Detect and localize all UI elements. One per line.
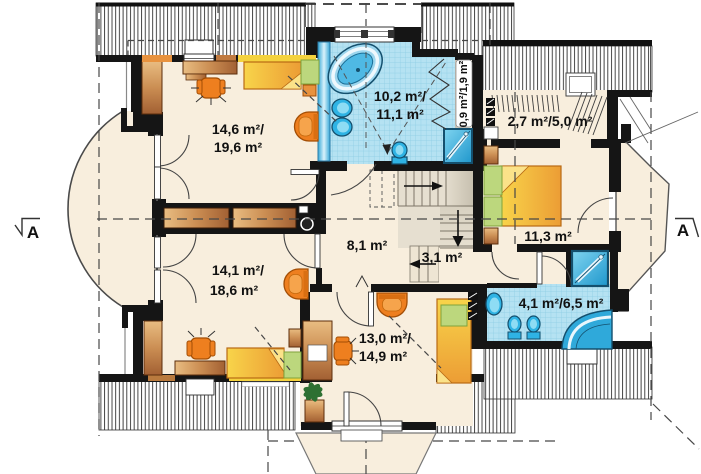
svg-text:0,9 m²/1,9 m²: 0,9 m²/1,9 m² [458,60,470,127]
svg-text:14,9 m²: 14,9 m² [359,348,408,364]
svg-text:10,2 m²/: 10,2 m²/ [374,88,426,104]
svg-text:8,1 m²: 8,1 m² [347,237,388,253]
svg-text:3,1 m²: 3,1 m² [422,249,463,265]
svg-text:A: A [677,221,689,240]
svg-text:18,6 m²: 18,6 m² [210,282,259,298]
svg-text:14,6 m²/: 14,6 m²/ [212,121,264,137]
svg-text:4,1 m²/6,5 m²: 4,1 m²/6,5 m² [519,295,604,311]
svg-text:13,0 m²/: 13,0 m²/ [359,330,411,346]
svg-text:2,7 m²/5,0 m²: 2,7 m²/5,0 m² [508,113,593,129]
svg-text:19,6 m²: 19,6 m² [214,139,263,155]
svg-text:11,3 m²: 11,3 m² [524,228,572,244]
svg-text:11,1 m²: 11,1 m² [376,106,424,122]
svg-text:A: A [27,223,39,242]
svg-text:14,1 m²/: 14,1 m²/ [212,262,264,278]
